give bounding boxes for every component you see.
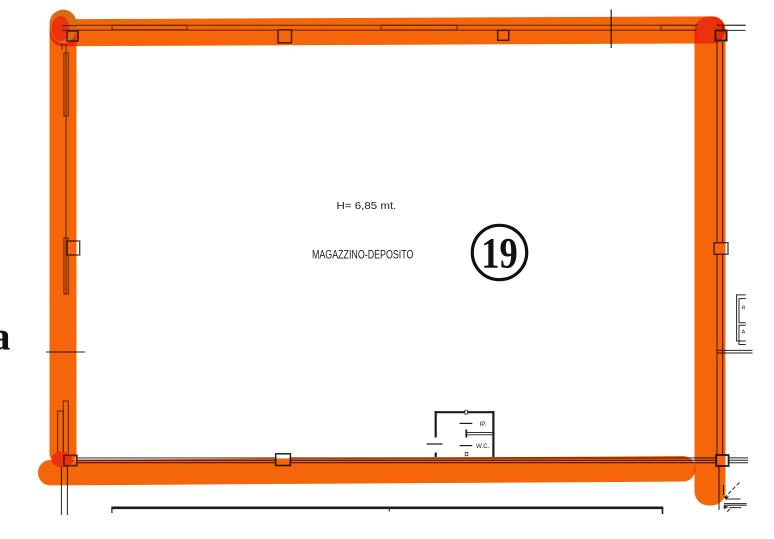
svg-text:R: R [742, 306, 746, 312]
svg-text:IP.: IP. [480, 421, 487, 428]
svg-text:H= 6,85 mt.: H= 6,85 mt. [337, 200, 397, 211]
svg-text:19: 19 [481, 229, 518, 277]
svg-text:W.C.: W.C. [476, 443, 490, 450]
svg-text:MAGAZZINO-DEPOSITO: MAGAZZINO-DEPOSITO [312, 248, 413, 262]
svg-text:A: A [742, 330, 746, 336]
svg-text:a: a [0, 314, 11, 359]
